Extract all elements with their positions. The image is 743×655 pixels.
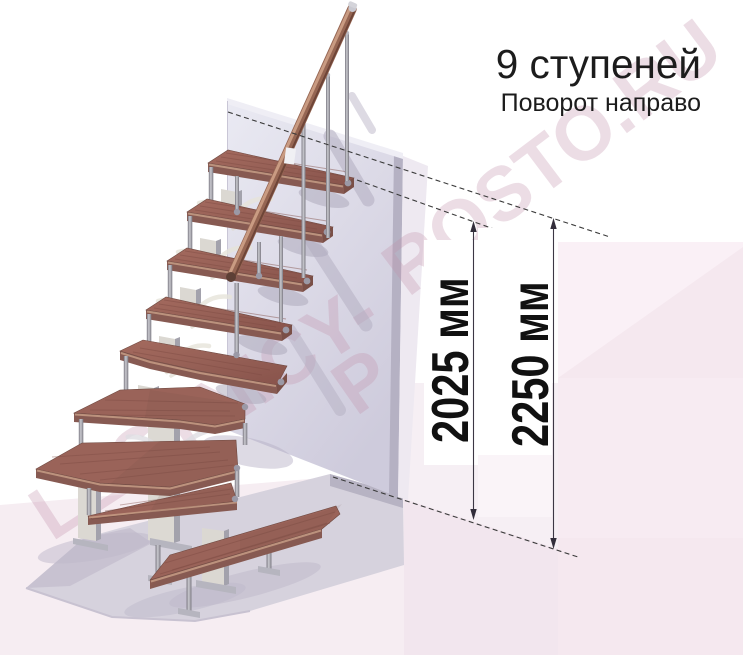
svg-text:2025 мм: 2025 мм	[421, 277, 480, 443]
svg-text:9 ступеней: 9 ступеней	[496, 41, 701, 87]
svg-text:2250 мм: 2250 мм	[501, 281, 560, 447]
svg-text:Поворот направо: Поворот направо	[501, 89, 701, 117]
